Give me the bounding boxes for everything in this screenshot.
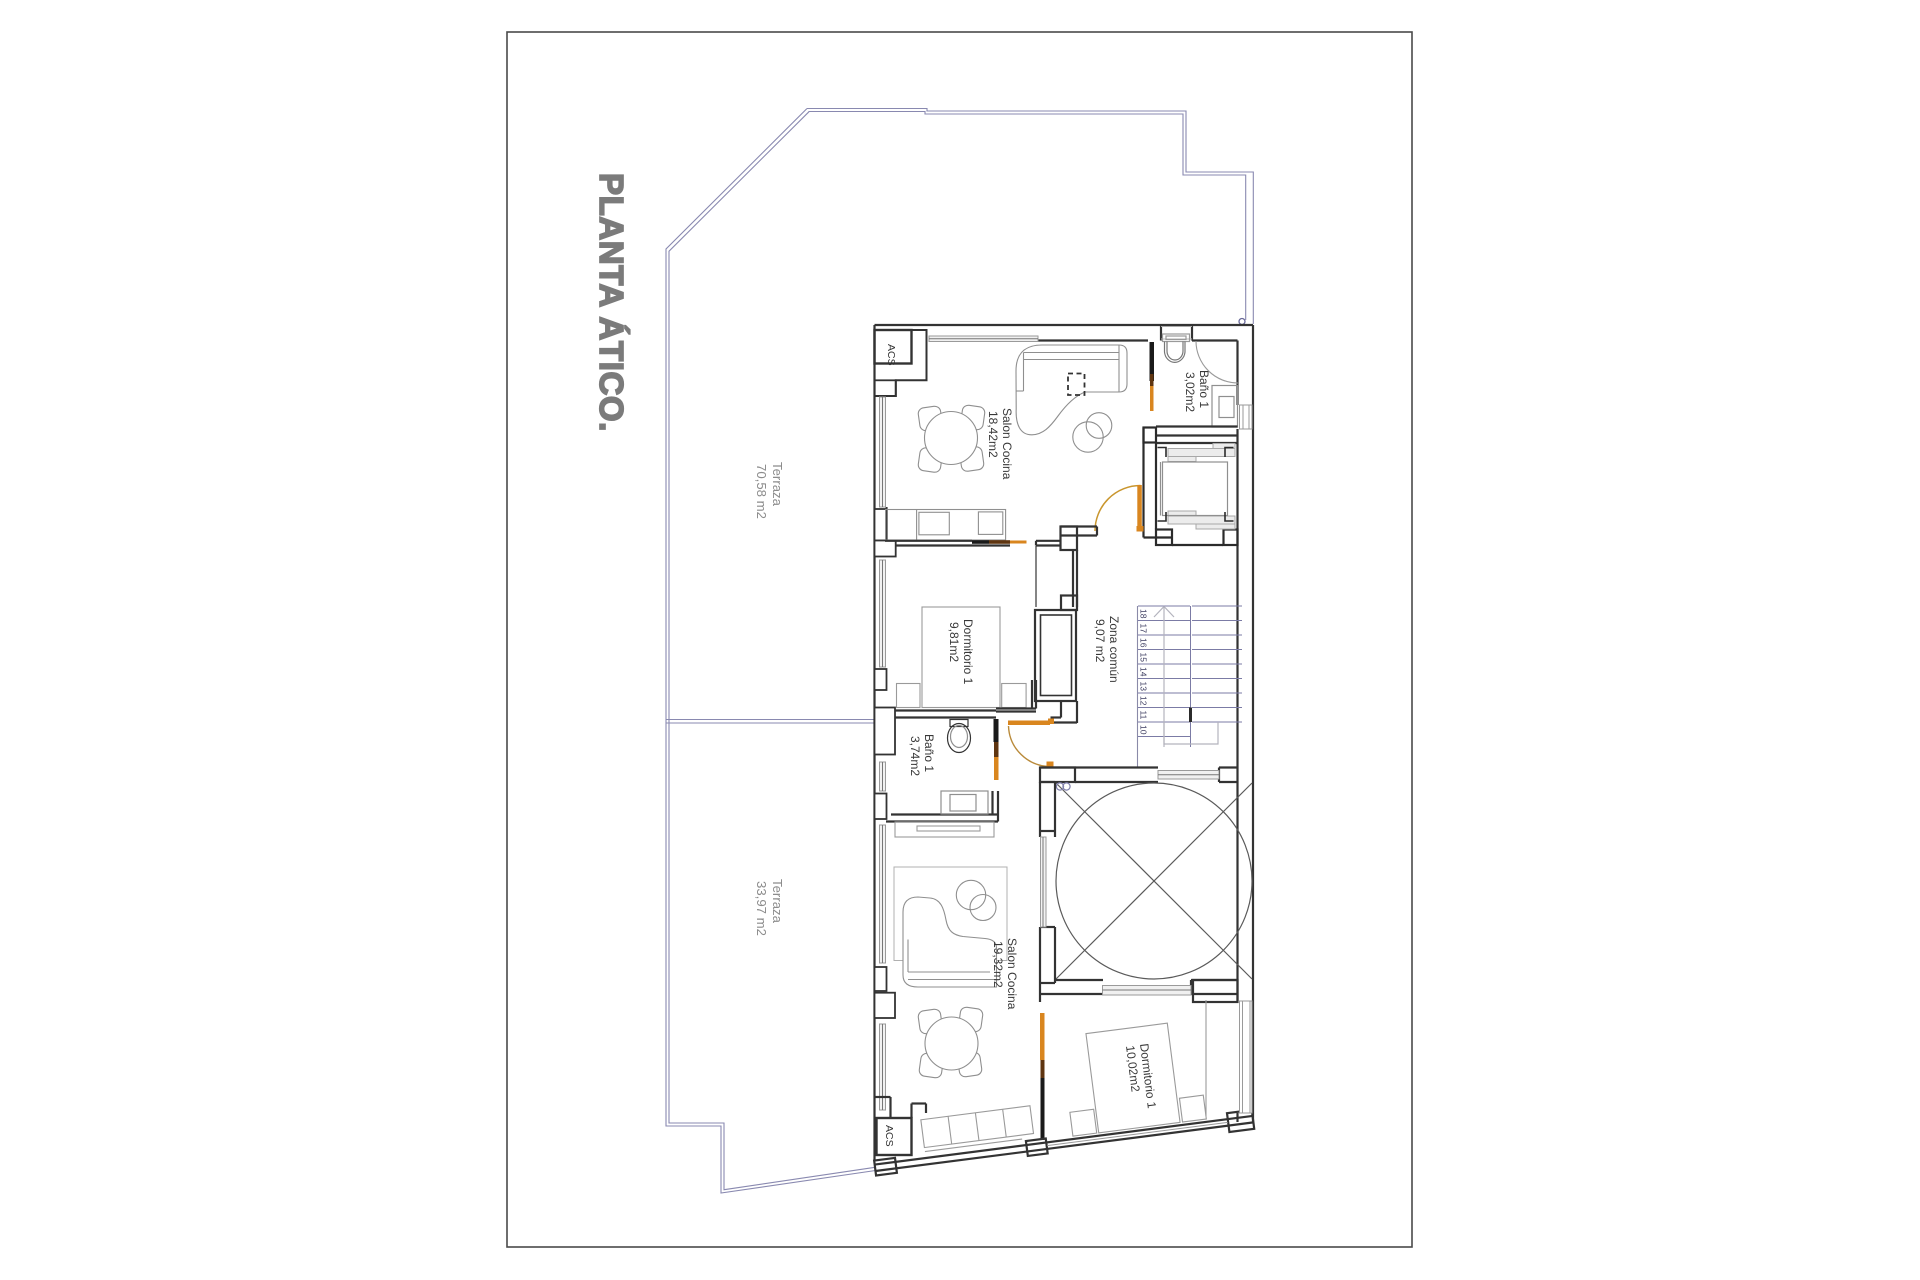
svg-text:14: 14 bbox=[1139, 667, 1149, 677]
svg-text:12: 12 bbox=[1139, 696, 1149, 706]
svg-text:Dormitorio 1: Dormitorio 1 bbox=[961, 619, 975, 685]
svg-text:Terraza: Terraza bbox=[770, 879, 785, 924]
svg-text:15: 15 bbox=[1139, 653, 1149, 663]
svg-text:Terraza: Terraza bbox=[770, 462, 785, 507]
svg-text:Salon Cocina: Salon Cocina bbox=[1000, 408, 1014, 480]
svg-text:18: 18 bbox=[1139, 609, 1149, 619]
svg-text:3,02m2: 3,02m2 bbox=[1183, 372, 1197, 412]
svg-text:Salon Cocina: Salon Cocina bbox=[1005, 938, 1019, 1010]
svg-text:PLANTA ÁTICO.: PLANTA ÁTICO. bbox=[593, 173, 630, 432]
svg-text:9,81m2: 9,81m2 bbox=[947, 622, 961, 662]
svg-text:ACS: ACS bbox=[885, 344, 897, 366]
svg-text:ACS: ACS bbox=[883, 1125, 895, 1147]
svg-text:18,42m2: 18,42m2 bbox=[986, 411, 1000, 458]
svg-text:9,07 m2: 9,07 m2 bbox=[1093, 619, 1107, 663]
svg-text:33,97 m2: 33,97 m2 bbox=[754, 881, 769, 936]
svg-text:10: 10 bbox=[1139, 725, 1149, 735]
svg-text:17: 17 bbox=[1139, 624, 1149, 634]
svg-text:Baño 1: Baño 1 bbox=[922, 734, 936, 772]
svg-text:16: 16 bbox=[1139, 638, 1149, 648]
svg-text:11: 11 bbox=[1139, 711, 1149, 720]
svg-text:Baño 1: Baño 1 bbox=[1197, 370, 1211, 408]
svg-text:Zona común: Zona común bbox=[1107, 616, 1121, 683]
svg-text:70,58 m2: 70,58 m2 bbox=[754, 464, 769, 519]
svg-text:13: 13 bbox=[1139, 682, 1149, 692]
svg-text:19,32m2: 19,32m2 bbox=[991, 941, 1005, 988]
svg-text:3,74m2: 3,74m2 bbox=[908, 736, 922, 776]
